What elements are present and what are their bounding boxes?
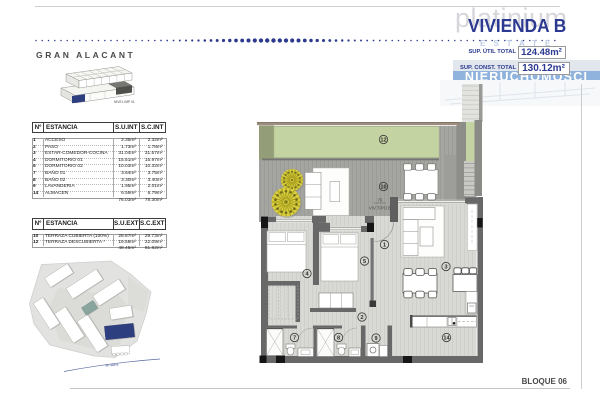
svg-text:9: 9: [374, 336, 377, 342]
svg-text:av. sierra: av. sierra: [105, 363, 118, 368]
svg-text:14: 14: [443, 336, 450, 342]
svg-text:1: 1: [383, 243, 386, 249]
svg-text:8: 8: [337, 336, 340, 342]
svg-text:5: 5: [363, 259, 366, 265]
svg-text:76: 76: [378, 198, 383, 203]
svg-text:12: 12: [380, 138, 386, 144]
svg-text:3: 3: [444, 265, 447, 271]
svg-text:10: 10: [380, 185, 386, 191]
svg-text:NIVEL IMP 01: NIVEL IMP 01: [114, 100, 135, 104]
svg-text:2: 2: [360, 315, 363, 321]
svg-text:VIV.TIPO B: VIV.TIPO B: [369, 206, 391, 211]
svg-text:7: 7: [293, 336, 296, 342]
